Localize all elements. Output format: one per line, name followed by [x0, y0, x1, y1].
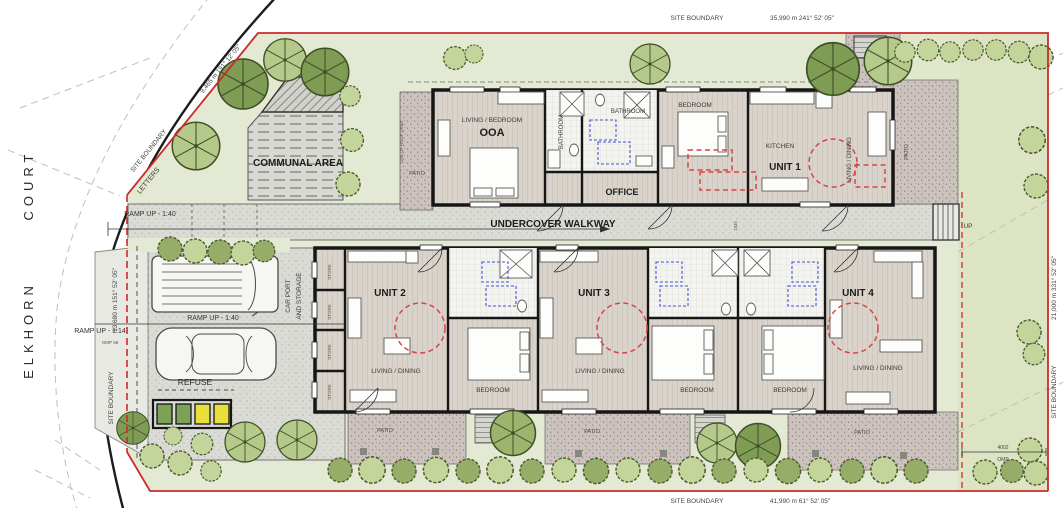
- label-ooa: OOA: [479, 127, 504, 139]
- shrub-icon: [465, 45, 483, 63]
- label-ramp-140-carport: RAMP UP - 1:40: [187, 315, 239, 322]
- shrub-icon: [840, 459, 864, 483]
- label-patio-unit1: PATIO: [904, 143, 910, 159]
- label-living-dining-unit2: LIVING / DINING: [371, 368, 420, 375]
- shrub-icon: [423, 457, 448, 482]
- shrub-icon: [1023, 343, 1045, 365]
- label-bedroom-unit2: BEDROOM: [476, 387, 510, 394]
- shrub-icon: [191, 433, 213, 455]
- shrub-icon: [168, 451, 192, 475]
- tree-icon: [264, 39, 307, 82]
- boundary-dim-top: 35,990 m 241° 52' 05": [770, 14, 835, 22]
- car-icon: [156, 328, 276, 380]
- shrub-icon: [359, 457, 385, 483]
- shrub-icon: [328, 458, 352, 482]
- label-living-bedroom: LIVING / BEDROOM: [462, 117, 522, 124]
- shrub-icon: [183, 239, 207, 263]
- shrub-icon: [336, 172, 360, 196]
- shrub-icon: [341, 129, 364, 152]
- ramp-note: OMP 56: [102, 340, 119, 345]
- label-unit1: UNIT 1: [769, 162, 801, 173]
- boundary-dim-right: 21,000 m 331° 52' 05": [1050, 255, 1058, 320]
- label-kitchen-unit1: KITCHEN: [766, 143, 795, 150]
- shrub-icon: [208, 240, 232, 264]
- shrub-icon: [164, 427, 182, 445]
- shrub-icon: [340, 86, 360, 106]
- site-plan-sheet: COURT ELKHORN SITE BOUNDARY 35,990 m 241…: [0, 0, 1063, 508]
- shrub-icon: [744, 458, 768, 482]
- label-undercover-walkway: UNDERCOVER WALKWAY: [490, 219, 616, 230]
- label-unit4: UNIT 4: [842, 288, 874, 299]
- bin-yellow-icon: [195, 404, 210, 424]
- shrub-icon: [1029, 45, 1053, 69]
- shrub-icon: [895, 42, 915, 62]
- shrub-icon: [392, 459, 416, 483]
- shrub-icon: [552, 458, 576, 482]
- bin-yellow-icon: [214, 404, 229, 424]
- tree-icon: [301, 48, 349, 96]
- label-store-4: STORE: [327, 384, 332, 399]
- bin-green-icon: [157, 404, 172, 424]
- label-up: UP: [963, 223, 972, 230]
- label-living-dining-unit4: LIVING / DINING: [853, 365, 902, 372]
- boundary-dim-left: 13,680 m 151° 52' 05": [111, 267, 119, 332]
- label-living-dining-unit1: LIVING / DINING: [847, 137, 853, 183]
- offset-dim: 4002: [997, 445, 1008, 451]
- tree-icon: [491, 411, 536, 456]
- label-communal-area: COMMUNAL AREA: [253, 158, 343, 169]
- boundary-label-bottom: SITE BOUNDARY: [671, 498, 725, 505]
- shrub-icon: [808, 458, 832, 482]
- label-bedroom-unit4: BEDROOM: [773, 387, 807, 394]
- label-carport-line2: AND STORAGE: [296, 272, 303, 320]
- shrub-icon: [158, 237, 182, 261]
- label-refuse: REFUSE: [178, 377, 213, 387]
- label-patio-unit3: PATIO: [584, 429, 600, 435]
- label-patio-unit2: PATIO: [377, 428, 393, 434]
- shrub-icon: [1019, 127, 1045, 153]
- shrub-icon: [973, 460, 997, 484]
- walkway-width-dim: 1935: [733, 221, 738, 231]
- label-unit2: UNIT 2: [374, 288, 406, 299]
- boundary-label-top: SITE BOUNDARY: [671, 15, 725, 22]
- bin-green-icon: [176, 404, 191, 424]
- shrub-icon: [456, 459, 480, 483]
- shrub-icon: [1017, 320, 1041, 344]
- shrub-icon: [1008, 41, 1030, 63]
- shrub-icon: [616, 458, 640, 482]
- shrub-icon: [487, 457, 513, 483]
- label-store-2: STORE: [327, 304, 332, 319]
- label-patio-ooa: PATIO: [409, 171, 425, 177]
- label-carport-line1: CAR PORT: [285, 279, 292, 312]
- tree-icon: [277, 420, 317, 460]
- shrub-icon: [140, 444, 164, 468]
- label-store-3: STORE: [327, 344, 332, 359]
- tree-icon: [697, 423, 737, 463]
- label-unit3: UNIT 3: [578, 288, 610, 299]
- shrub-icon: [904, 459, 928, 483]
- shrub-icon: [520, 459, 544, 483]
- stairs-icon: [933, 204, 959, 240]
- site-plan-drawing: COURT ELKHORN SITE BOUNDARY 35,990 m 241…: [0, 0, 1063, 508]
- tree-icon: [630, 44, 670, 84]
- building-units-2-3-4: [312, 245, 935, 414]
- communal-paving: [248, 112, 343, 200]
- shrub-icon: [871, 457, 897, 483]
- label-patio-unit4: PATIO: [854, 430, 870, 436]
- street-label-elkhorn: ELKHORN: [21, 281, 36, 379]
- shrub-icon: [1024, 461, 1048, 485]
- shrub-icon: [201, 461, 221, 481]
- boundary-label-right: SITE BOUNDARY: [1051, 365, 1058, 419]
- label-line-of-roof: LINE OF ROOF OVER: [399, 121, 404, 164]
- shrub-icon: [1001, 460, 1024, 483]
- street-label-court: COURT: [21, 150, 36, 221]
- tree-icon: [117, 412, 150, 445]
- tree-icon: [225, 422, 265, 462]
- shrub-icon: [775, 458, 800, 483]
- label-bedroom-unit1: BEDROOM: [678, 102, 712, 109]
- tree-icon: [807, 43, 860, 96]
- label-living-dining-unit3: LIVING / DINING: [575, 368, 624, 375]
- shrub-icon: [940, 42, 960, 62]
- label-office: OFFICE: [606, 187, 639, 197]
- shrub-icon: [444, 47, 467, 70]
- shrub-icon: [986, 40, 1006, 60]
- label-ramp-140-top: RAMP UP - 1:40: [124, 211, 176, 218]
- shrub-icon: [231, 241, 255, 265]
- shrub-icon: [583, 458, 608, 483]
- label-bathroom-2: BATHROOM: [611, 109, 645, 115]
- shrub-icon: [648, 459, 672, 483]
- shrub-icon: [1018, 438, 1042, 462]
- label-bathroom-1: BATHROOM: [559, 115, 565, 149]
- boundary-label-left: SITE BOUNDARY: [108, 371, 115, 425]
- offset-label: OMP: [997, 457, 1009, 463]
- boundary-dim-bottom: 41,990 m 61° 52' 05": [770, 497, 831, 505]
- label-ramp-114: RAMP UP - 1:14: [74, 328, 126, 335]
- label-store-1: STORE: [327, 264, 332, 279]
- shrub-icon: [917, 39, 939, 61]
- shrub-icon: [963, 40, 983, 60]
- shrub-icon: [253, 240, 275, 262]
- label-bedroom-unit3: BEDROOM: [680, 387, 714, 394]
- shrub-icon: [1024, 174, 1048, 198]
- shrub-icon: [679, 457, 705, 483]
- shrub-icon: [712, 459, 736, 483]
